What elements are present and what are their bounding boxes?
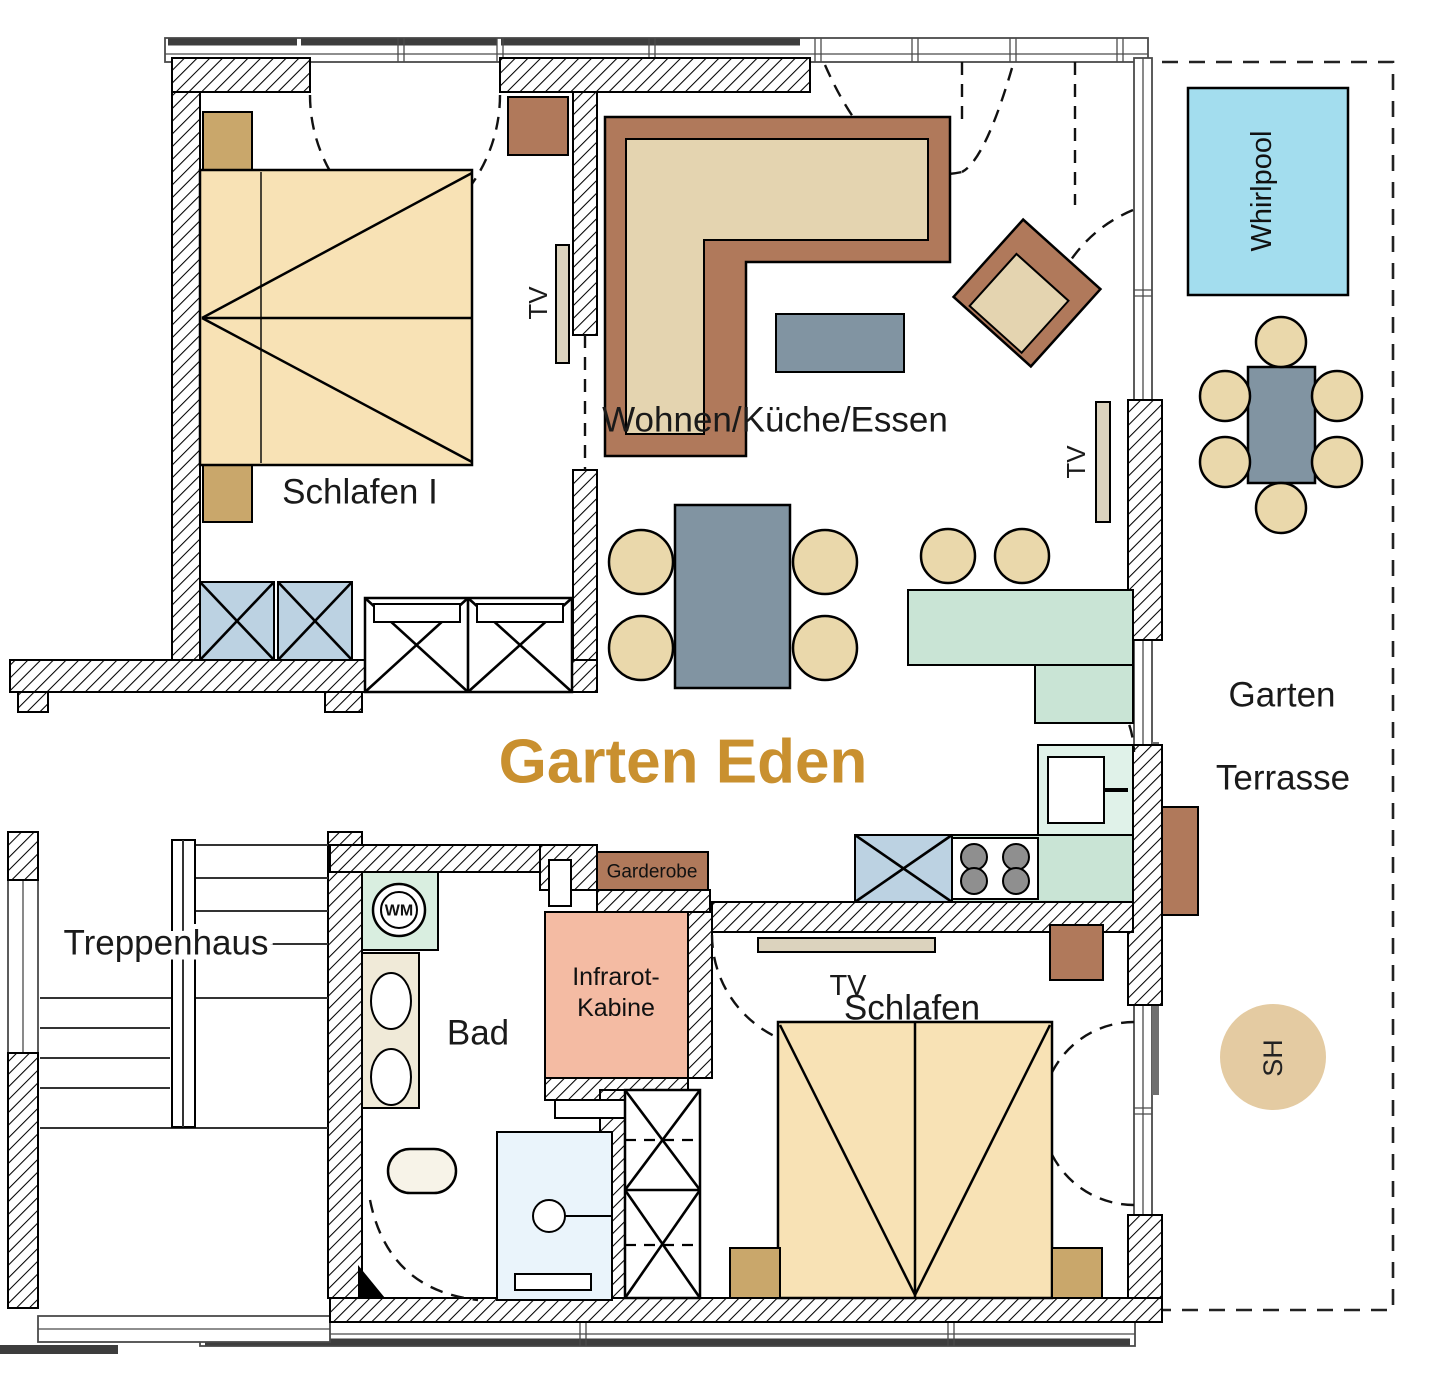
label-treppenhaus: Treppenhaus	[64, 924, 269, 963]
dining-chair	[793, 616, 857, 680]
shower-shelf	[515, 1274, 591, 1290]
wall-bad-top	[330, 845, 545, 872]
sill-bottom-left	[0, 1345, 118, 1354]
dresser-white	[365, 598, 572, 692]
label-bad: Bad	[447, 1014, 509, 1053]
wall-tab-1	[18, 692, 48, 712]
shelf-brown-schlafen2	[1050, 925, 1103, 980]
wall-left-outer	[172, 58, 200, 692]
dining-chair	[609, 616, 673, 680]
label-garten: Garten	[1229, 676, 1336, 715]
nightstand-1b	[203, 465, 252, 522]
kitchen-counter-right	[1035, 665, 1133, 723]
wall-infrarot-right	[688, 912, 712, 1078]
garden-chair	[1256, 483, 1306, 533]
coffee-table	[776, 314, 904, 372]
garden-chair	[1200, 371, 1250, 421]
kitchen-sink	[1048, 757, 1104, 823]
garden-chair	[1312, 437, 1362, 487]
tv-schlafen2	[758, 938, 935, 952]
wall-interior-upper	[573, 92, 597, 335]
label-wohnen: Wohnen/Küche/Essen	[602, 401, 948, 440]
sink-1	[371, 973, 411, 1029]
stove	[952, 838, 1038, 899]
tv-living	[1096, 402, 1110, 522]
wall-trepp-left-bottom	[8, 1053, 38, 1308]
floorplan-page: Schlafen I Wohnen/Küche/Essen Garten Ede…	[0, 0, 1440, 1380]
wall-bottom	[330, 1298, 1162, 1322]
wardrobe-column	[625, 1090, 700, 1298]
garden-chair	[1256, 317, 1306, 367]
garden-table	[1248, 367, 1315, 483]
wall-top-1	[172, 58, 310, 92]
shelf-brown-schlafen1	[508, 97, 568, 155]
plan-title: Garten Eden	[499, 728, 868, 797]
dining-chair	[609, 530, 673, 594]
wall-top-2	[500, 58, 810, 92]
wall-tab-2	[325, 692, 362, 712]
label-whirlpool: Whirlpool	[1246, 131, 1278, 252]
label-garderobe: Garderobe	[607, 862, 698, 883]
floorplan-drawing: Schlafen I Wohnen/Küche/Essen Garten Ede…	[0, 0, 1440, 1380]
garden-chair	[1312, 371, 1362, 421]
garden-chair	[1200, 437, 1250, 487]
wall-bad-left	[328, 832, 362, 1298]
toilet	[388, 1149, 456, 1193]
label-sh: SH	[1258, 1039, 1288, 1077]
nightstand-1a	[203, 112, 252, 170]
bar-stool	[995, 529, 1049, 583]
dining-table	[675, 505, 790, 688]
label-terrasse: Terrasse	[1216, 759, 1350, 798]
tv-schlafen1	[556, 245, 569, 363]
label-infrarot-2: Kabine	[577, 994, 655, 1022]
shower-drain	[533, 1200, 565, 1232]
label-tv-schlafen2: TV	[829, 970, 867, 1002]
dining-chair	[793, 530, 857, 594]
garderobe-door-leaf	[549, 860, 571, 906]
nightstand-2b	[1052, 1248, 1102, 1298]
label-wm: WM	[385, 903, 413, 920]
terrace-bench	[1162, 807, 1198, 915]
label-tv-living: TV	[1061, 445, 1091, 479]
wall-interior-lower	[573, 470, 597, 692]
label-infrarot-1: Infrarot-	[572, 963, 660, 991]
label-tv-schlafen1: TV	[523, 286, 553, 320]
kitchen-counter-top	[908, 590, 1133, 665]
bar-stool	[921, 529, 975, 583]
kitchen-cabinet-x	[855, 835, 952, 902]
wall-trepp-left-top	[8, 832, 38, 880]
sink-2	[371, 1049, 411, 1105]
wall-garderobe-bottom	[597, 890, 710, 912]
label-schlafen1: Schlafen I	[282, 473, 438, 512]
nightstand-2a	[730, 1248, 780, 1298]
